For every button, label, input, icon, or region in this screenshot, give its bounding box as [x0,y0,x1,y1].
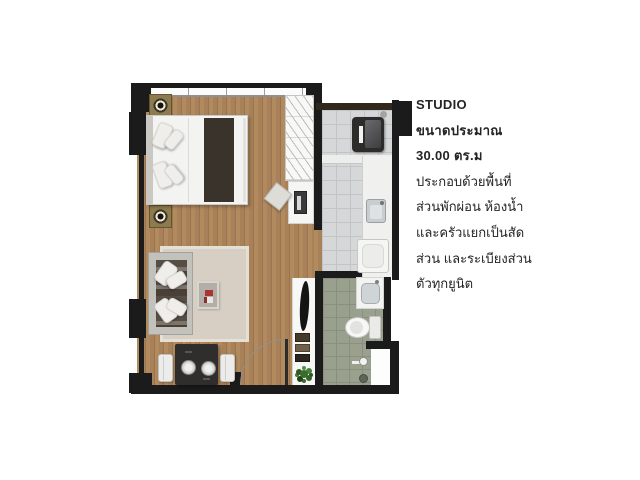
sink-basin [370,205,382,219]
unit-description-line: ประกอบด้วยพื้นที่ [416,169,586,195]
plant-foliage [300,370,308,378]
shelf-item [295,333,310,342]
unit-size-label: ขนาดประมาณ [416,118,586,144]
lamp-icon [153,98,168,113]
nightstand [149,205,172,228]
chair-line [225,356,226,380]
monitor [294,191,307,214]
toilet-bowl-inner [350,321,363,334]
service-notch [371,349,390,385]
lamp-icon [153,209,168,224]
nightstand [149,94,172,117]
cutlery [185,351,192,353]
bed-headboard [147,116,153,204]
faucet-icon [375,280,379,284]
bed-foot-line [243,118,246,202]
plant [294,364,314,384]
service-notch-wall [390,341,399,392]
bed-runner [204,118,234,202]
stove-top [365,120,381,148]
window-band [151,88,307,97]
plate [181,360,196,375]
wardrobe [285,95,314,181]
cutlery [203,378,210,380]
interior-wall-bathroom [315,273,323,387]
kitchen-sink [366,199,386,223]
desk [288,181,314,224]
dining-table [175,344,218,385]
stove-handle [359,126,363,143]
unit-size-value: 30.00 ตร.ม [416,143,586,169]
info-panel: STUDIO ขนาดประมาณ 30.00 ตร.ม ประกอบด้วยพ… [416,92,586,297]
sofa [148,252,193,335]
table-decor [204,297,213,303]
wall-column [129,299,146,338]
shelf-item [295,354,310,362]
dining-chair [158,354,173,382]
interior-wall-kitchen [314,100,322,230]
kitchen-bathroom-divider-wall [315,271,362,278]
toilet-tank [369,316,381,339]
unit-description-line: ส่วนพักผ่อน ห้องน้ำ [416,194,586,220]
table-decor [205,290,213,296]
chair-line [163,356,164,380]
unit-description-line: ส่วน และระเบียงส่วน [416,246,586,272]
monitor-screen [297,196,301,210]
exterior-wall-right [392,100,399,280]
floor-drain-icon [359,374,368,383]
service-notch-wall [366,341,392,349]
plate [201,361,216,376]
shelf-item [295,344,310,352]
bed-sheet-line [188,118,189,202]
wall-column [129,112,146,155]
dining-chair [220,354,235,382]
bathroom-basin [361,283,380,304]
unit-description-line: ตัวทุกยูนิต [416,271,586,297]
kitchen-top-wall [316,103,394,110]
appliance [357,239,389,273]
bed [146,115,248,205]
floor-plan-page: STUDIO ขนาดประมาณ 30.00 ตร.ม ประกอบด้วยพ… [0,0,640,480]
stove [352,117,384,152]
faucet-icon [380,201,384,205]
exterior-wall-bottom [131,385,399,394]
unit-title: STUDIO [416,92,586,118]
unit-description-line: และครัวแยกเป็นสัด [416,220,586,246]
coffee-table [197,281,219,309]
toilet [345,317,370,338]
appliance-door [362,244,384,268]
bathroom-sink-counter [356,277,384,309]
wall-dot [380,111,387,118]
balcony-door-leaf [285,339,288,385]
wall-column [399,101,412,136]
shower-head-icon [359,357,368,366]
bathroom-right-wall [383,277,391,346]
